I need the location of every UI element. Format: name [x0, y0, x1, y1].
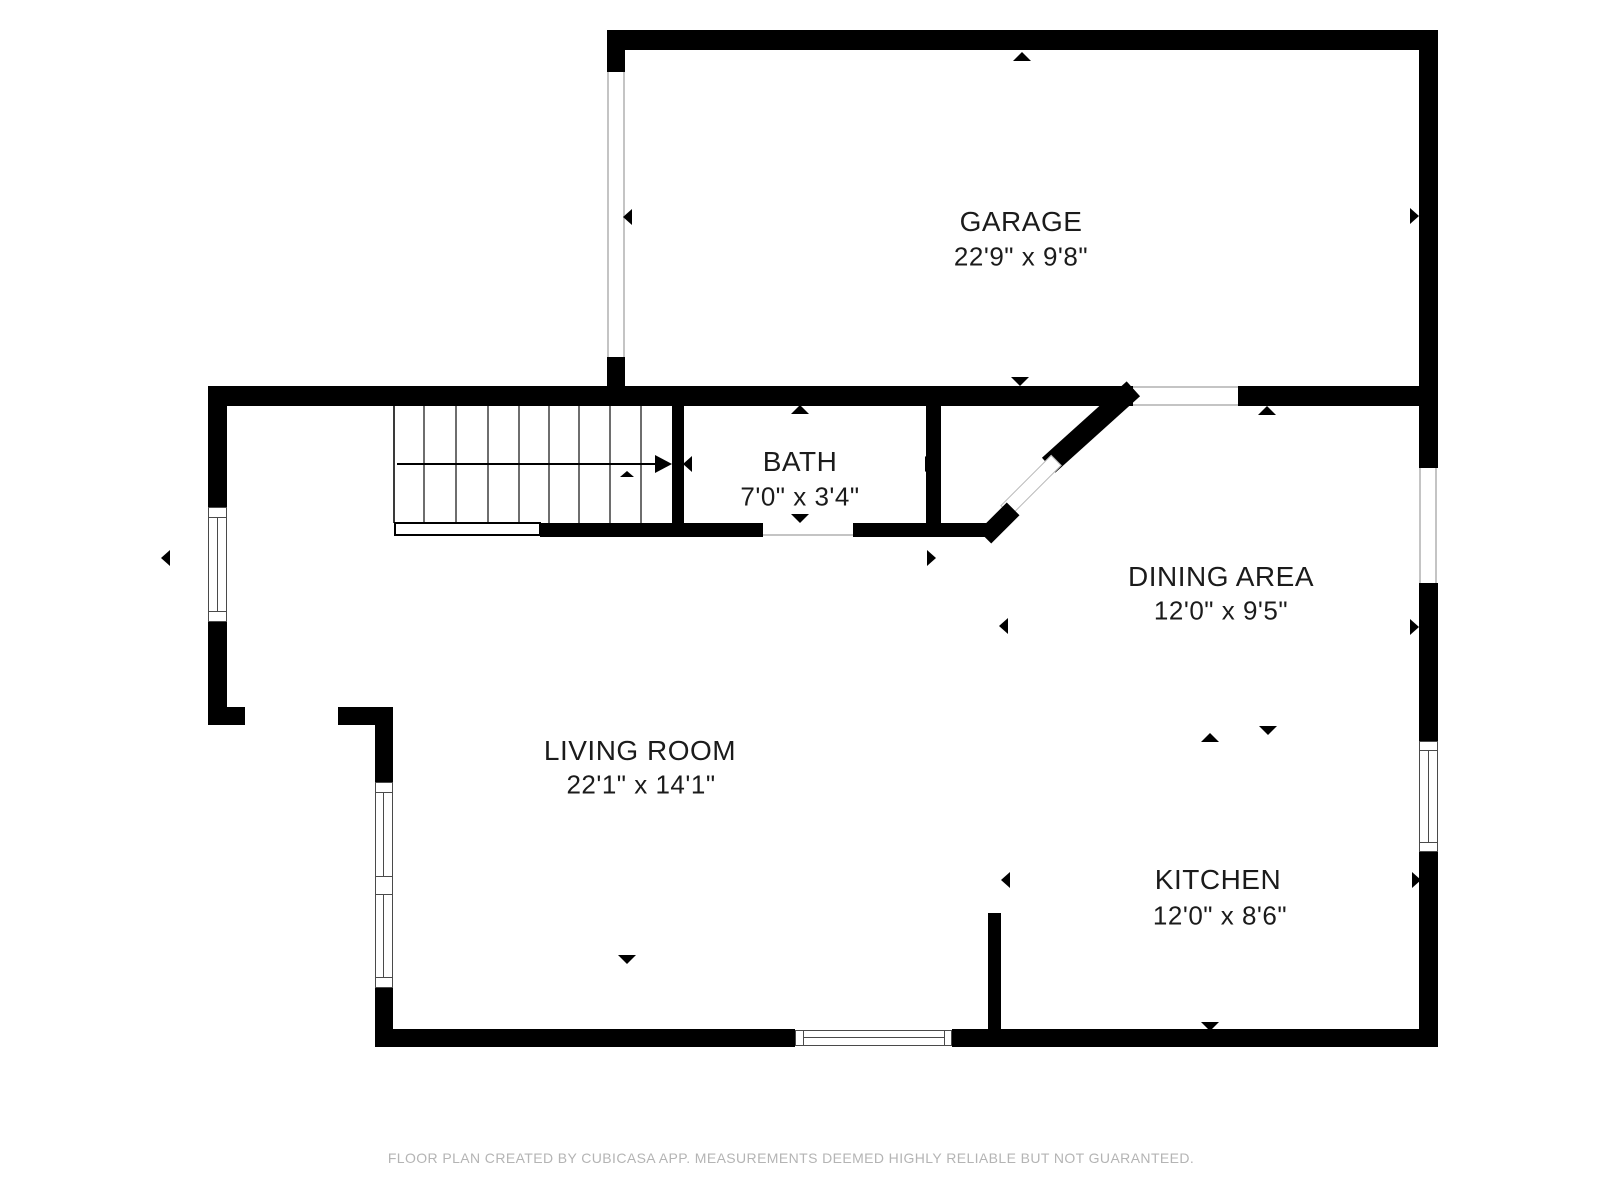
wall-garage-top	[607, 30, 1438, 50]
stairs-arrow-icon	[655, 455, 672, 473]
wall-bath-bottom-right	[853, 523, 993, 537]
wall-left-end-stub	[227, 707, 245, 725]
wall-under-stairs	[540, 523, 763, 537]
arrow-left-icon	[1001, 872, 1010, 888]
window-center-line	[1428, 750, 1429, 842]
arrow-down-icon	[1259, 726, 1277, 735]
window	[795, 1030, 952, 1046]
arrow-down-icon	[1011, 377, 1029, 386]
wall-garage-left-bottom-stub	[607, 357, 625, 388]
wall-garage-left-top-stub	[607, 30, 625, 72]
stairs-left-edge	[393, 406, 395, 523]
arrow-left-icon	[683, 456, 692, 472]
floor-plan: GARAGE 22'9" x 9'8" BATH 7'0" x 3'4" DIN…	[0, 0, 1600, 1200]
window-frame-line	[375, 894, 393, 895]
wall-left-mid	[208, 622, 227, 725]
window-frame-line	[1419, 842, 1438, 843]
wall-left-lower-top	[375, 725, 393, 782]
arrow-right-icon	[1412, 872, 1421, 888]
doorway-opening-line	[1133, 404, 1238, 406]
room-label-garage: GARAGE	[960, 206, 1083, 238]
wall-opening-line	[1419, 468, 1421, 583]
arrow-up-icon	[620, 471, 634, 477]
window-frame-line	[375, 792, 393, 793]
arrow-right-icon	[1410, 619, 1419, 635]
arrow-right-icon	[1410, 208, 1419, 224]
window-frame-line	[375, 876, 393, 877]
wall-bottom-left	[375, 1029, 795, 1047]
arrow-left-icon	[161, 550, 170, 566]
arrow-right-icon	[927, 550, 936, 566]
room-dims-dining: 12'0" x 9'5"	[1154, 596, 1288, 627]
wall-step-stub	[338, 707, 393, 725]
room-label-kitchen: KITCHEN	[1155, 864, 1281, 896]
wall-right-lower	[1419, 852, 1438, 1047]
wall-main-band-left	[208, 386, 1133, 406]
window-frame-line	[375, 977, 393, 978]
wall-bottom-right	[952, 1029, 1438, 1047]
room-dims-bath: 7'0" x 3'4"	[740, 482, 859, 513]
footer-disclaimer: FLOOR PLAN CREATED BY CUBICASA APP. MEAS…	[388, 1150, 1194, 1166]
room-dims-living: 22'1" x 14'1"	[566, 770, 715, 801]
arrow-up-icon	[1258, 406, 1276, 415]
window-frame-line	[944, 1030, 945, 1046]
garage-door-opening-line	[607, 72, 609, 357]
window-center-line	[383, 894, 384, 977]
wall-right-middle	[1419, 583, 1438, 741]
room-label-dining: DINING AREA	[1128, 561, 1314, 593]
window-center-line	[803, 1037, 944, 1038]
arrow-down-icon	[618, 955, 636, 964]
stairs-landing	[394, 522, 541, 536]
wall-main-band-right	[1238, 386, 1438, 406]
window-frame-line	[803, 1030, 804, 1046]
room-label-living: LIVING ROOM	[544, 735, 736, 767]
bath-door-opening-line	[763, 534, 853, 536]
arrow-up-icon	[1013, 52, 1031, 61]
window-center-line	[217, 517, 218, 612]
window-center-line	[383, 792, 384, 876]
room-label-bath: BATH	[763, 446, 838, 478]
window	[375, 782, 393, 988]
wall-left-upper	[208, 386, 227, 507]
room-dims-kitchen: 12'0" x 8'6"	[1153, 901, 1287, 932]
arrow-down-icon	[1201, 1022, 1219, 1031]
arrow-up-icon	[1201, 733, 1219, 742]
stairs-direction-line	[397, 463, 655, 465]
arrow-left-icon	[999, 618, 1008, 634]
arrow-up-icon	[791, 405, 809, 414]
wall-opening-line	[1435, 468, 1437, 583]
arrow-left-icon	[623, 209, 632, 225]
wall-kitchen-divider	[988, 913, 1001, 1031]
doorway-opening-line	[1133, 386, 1238, 388]
wall-diagonal-stub	[978, 502, 1019, 543]
room-dims-garage: 22'9" x 9'8"	[954, 242, 1088, 273]
wall-left-lower-bottom	[375, 988, 393, 1030]
arrow-right-icon	[925, 456, 934, 472]
arrow-down-icon	[791, 514, 809, 523]
